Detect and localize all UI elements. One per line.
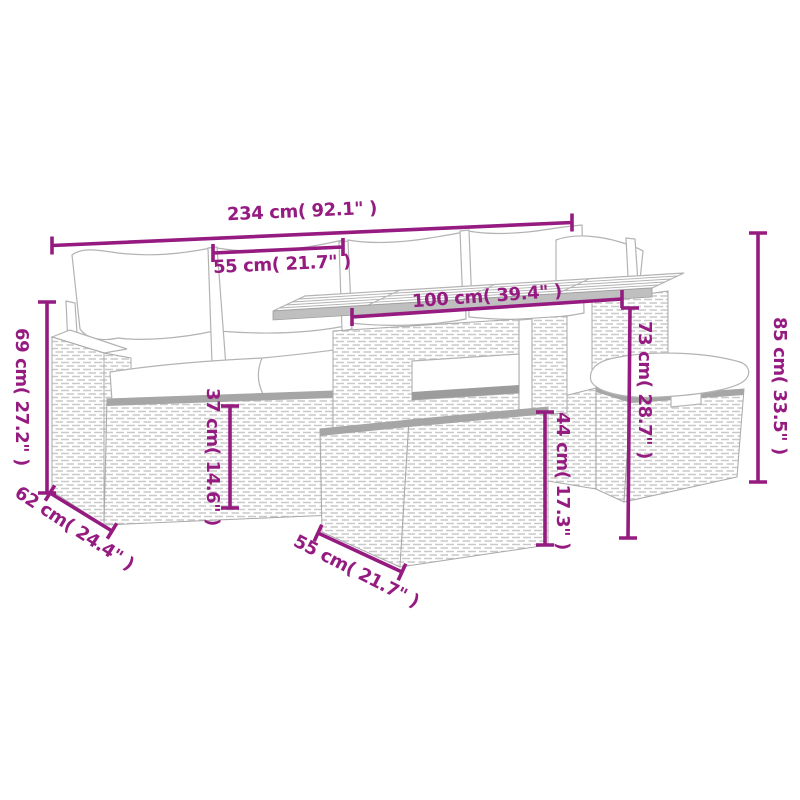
dim-label-total-height: 85 cm( 33.5" ) xyxy=(770,317,788,455)
dim-label-table-height: 73 cm( 28.7" ) xyxy=(635,321,653,459)
dim-label-back-height: 69 cm( 27.2" ) xyxy=(12,328,30,466)
dim-label-table-base-height: 44 cm( 17.3" ) xyxy=(553,412,571,550)
back-pillow-1 xyxy=(72,248,214,340)
stool xyxy=(590,353,748,502)
table-post-strip xyxy=(519,319,532,416)
dim-line-total-height xyxy=(749,233,767,482)
dim-label-seat-height: 37 cm( 14.6" ) xyxy=(203,388,221,526)
table-base-front xyxy=(400,407,548,567)
table-base-side xyxy=(320,420,409,567)
furniture-line-art xyxy=(0,0,800,800)
armrest-outer-face xyxy=(52,337,104,525)
dimension-diagram: 234 cm( 92.1" ) 55 cm( 21.7" ) 100 cm( 3… xyxy=(0,0,800,800)
